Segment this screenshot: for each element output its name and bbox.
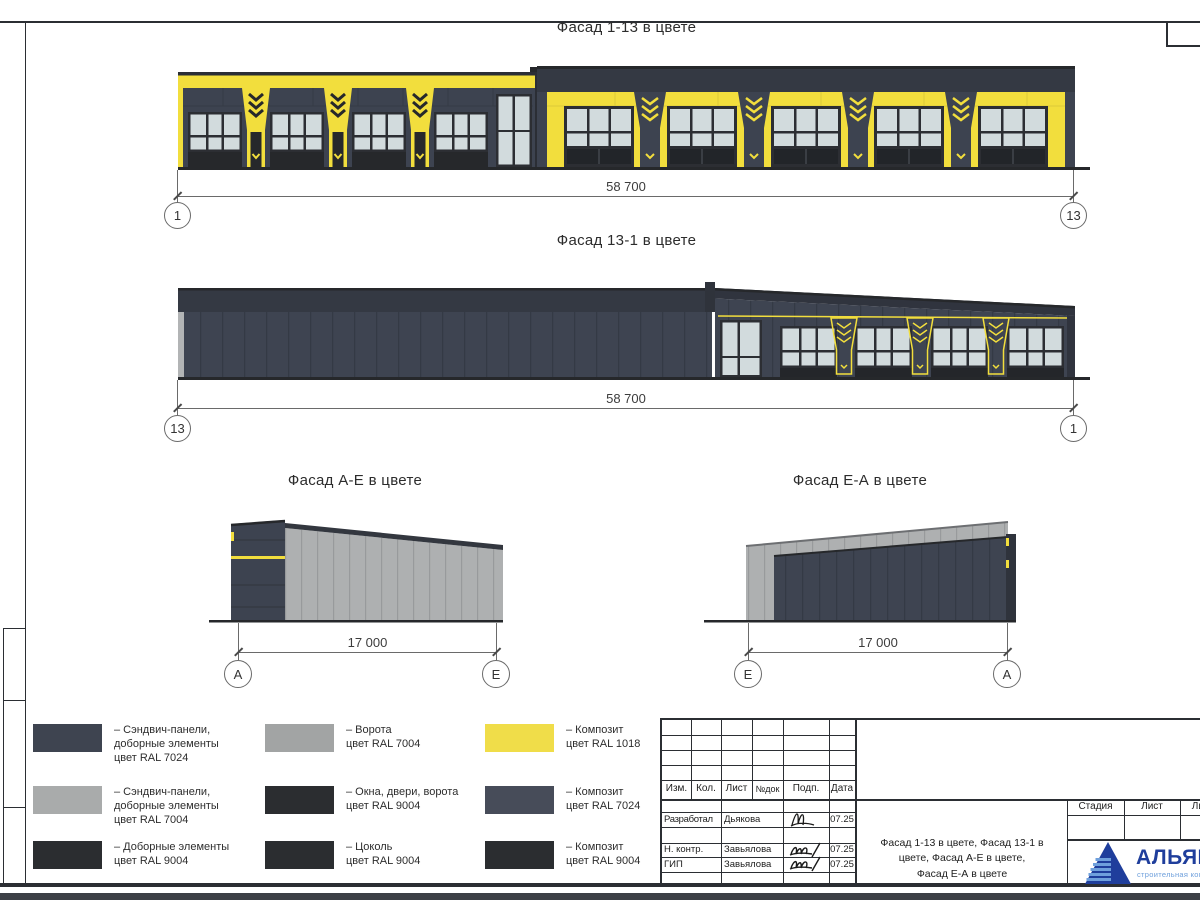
- legend-item: – Композит цвет RAL 7024: [485, 786, 655, 814]
- axis-bubble: 1: [1060, 415, 1087, 442]
- dimension-value: 17 000: [748, 635, 1008, 650]
- stamp-doc-title: Фасад 1-13 в цвете, Фасад 13-1 в цвете, …: [857, 832, 1067, 886]
- title-block: Изм. Кол. Лист №док Подп. Дата Разработа…: [660, 718, 1200, 886]
- company-logo-subtitle: строительная компания: [1137, 870, 1200, 879]
- axis-bubble: Е: [734, 660, 762, 688]
- legend-item: – Сэндвич-панели, доборные элементы цвет…: [33, 724, 258, 766]
- stamp-date: 07.25: [829, 857, 855, 872]
- frame-left-line: [25, 21, 26, 886]
- legend-item: – Композит цвет RAL 9004: [485, 841, 655, 869]
- view-title-facade-a-e: Фасад А-Е в цвете: [205, 472, 505, 489]
- axis-bubble: 13: [1060, 202, 1087, 229]
- legend-label: – Цоколь цвет RAL 9004: [346, 841, 420, 869]
- legend-item: – Окна, двери, ворота цвет RAL 9004: [265, 786, 480, 814]
- stamp-col-ndok: №док: [752, 780, 783, 799]
- facade-13-1-right-section: [715, 288, 1075, 377]
- margin-cell-line: [3, 807, 25, 808]
- facade-1-13-drawing: [178, 66, 1090, 170]
- stamp-name: Завьялова: [724, 843, 782, 857]
- legend-swatch: [485, 786, 554, 814]
- facade-1-13-right-section: [530, 66, 1075, 167]
- stamp-col-podp: Подп.: [783, 780, 829, 799]
- facade-1-13-left-section: [178, 72, 537, 167]
- axis-bubble: 13: [164, 415, 191, 442]
- facade-e-a-body: [746, 522, 1016, 620]
- legend-swatch: [485, 724, 554, 752]
- margin-cell-line: [3, 628, 25, 629]
- company-logo-icon: [1085, 842, 1131, 884]
- view-title-facade-1-13: Фасад 1-13 в цвете: [178, 19, 1075, 36]
- axis-bubble: А: [993, 660, 1021, 688]
- ground-line: [209, 620, 503, 623]
- facade-a-e-body: [231, 520, 503, 620]
- legend-label: – Сэндвич-панели, доборные элементы цвет…: [114, 724, 219, 766]
- legend-item: – Ворота цвет RAL 7004: [265, 724, 480, 752]
- stamp-col-kol: Кол.: [691, 780, 721, 799]
- view-title-facade-e-a: Фасад Е-А в цвете: [700, 472, 1020, 489]
- facade-13-1-drawing: [178, 280, 1090, 380]
- dimension-line: [178, 408, 1074, 409]
- dimension-value: 58 700: [178, 179, 1074, 194]
- legend-label: – Композит цвет RAL 7024: [566, 786, 640, 814]
- stamp-role: Разработал: [664, 812, 721, 827]
- margin-cell-line: [3, 700, 25, 701]
- dimension-line: [748, 652, 1008, 653]
- stamp-sheet-label: Лист: [1124, 799, 1180, 815]
- axis-bubble: А: [224, 660, 252, 688]
- ground-line: [178, 377, 1090, 380]
- legend-swatch: [265, 841, 334, 869]
- stamp-date: 07.25: [829, 812, 855, 827]
- dimension-line: [178, 196, 1074, 197]
- company-logo-name: АЛЬЯНС: [1136, 846, 1200, 870]
- legend-label: – Доборные элементы цвет RAL 9004: [114, 841, 229, 869]
- legend-swatch: [265, 786, 334, 814]
- facade-13-1-left-section: [178, 282, 715, 377]
- margin-cell-line: [3, 628, 4, 883]
- legend-swatch: [33, 724, 102, 752]
- legend-swatch: [33, 841, 102, 869]
- ground-line: [178, 167, 1090, 170]
- facade-e-a-drawing: [700, 510, 1020, 626]
- axis-bubble: 1: [164, 202, 191, 229]
- drawing-sheet: Фасад 1-13 в цвете: [0, 0, 1200, 900]
- stamp-stage-label: Стадия: [1067, 799, 1124, 815]
- legend-label: – Ворота цвет RAL 7004: [346, 724, 420, 752]
- dimension-line: [238, 652, 497, 653]
- legend-item: – Цоколь цвет RAL 9004: [265, 841, 480, 869]
- stamp-name: Завьялова: [724, 857, 782, 872]
- legend-swatch: [33, 786, 102, 814]
- signature-icon: [788, 855, 826, 873]
- stamp-col-list: Лист: [721, 780, 752, 799]
- format-stamp-box: [1166, 21, 1200, 47]
- stamp-role: ГИП: [664, 857, 721, 872]
- legend-label: – Композит цвет RAL 1018: [566, 724, 640, 752]
- view-title-facade-13-1: Фасад 13-1 в цвете: [178, 232, 1075, 249]
- stamp-role: Н. контр.: [664, 843, 721, 857]
- legend-label: – Композит цвет RAL 9004: [566, 841, 640, 869]
- stamp-col-izm: Изм.: [662, 780, 691, 799]
- legend-item: – Доборные элементы цвет RAL 9004: [33, 841, 258, 869]
- dimension-value: 17 000: [238, 635, 497, 650]
- dimension-value: 58 700: [178, 391, 1074, 406]
- legend-item: – Композит цвет RAL 1018: [485, 724, 655, 752]
- signature-icon: [788, 807, 826, 829]
- axis-bubble: Е: [482, 660, 510, 688]
- ground-line: [704, 620, 1016, 623]
- stamp-name: Дьякова: [724, 812, 782, 827]
- stamp-col-data: Дата: [829, 780, 855, 799]
- page-bottom-strip: [0, 893, 1200, 900]
- legend-label: – Сэндвич-панели, доборные элементы цвет…: [114, 786, 219, 828]
- legend-swatch: [265, 724, 334, 752]
- legend-label: – Окна, двери, ворота цвет RAL 9004: [346, 786, 458, 814]
- stamp-sheets-label: Листов: [1180, 799, 1200, 815]
- facade-a-e-drawing: [205, 510, 505, 626]
- stamp-date: 07.25: [829, 843, 855, 857]
- legend-swatch: [485, 841, 554, 869]
- legend-item: – Сэндвич-панели, доборные элементы цвет…: [33, 786, 258, 828]
